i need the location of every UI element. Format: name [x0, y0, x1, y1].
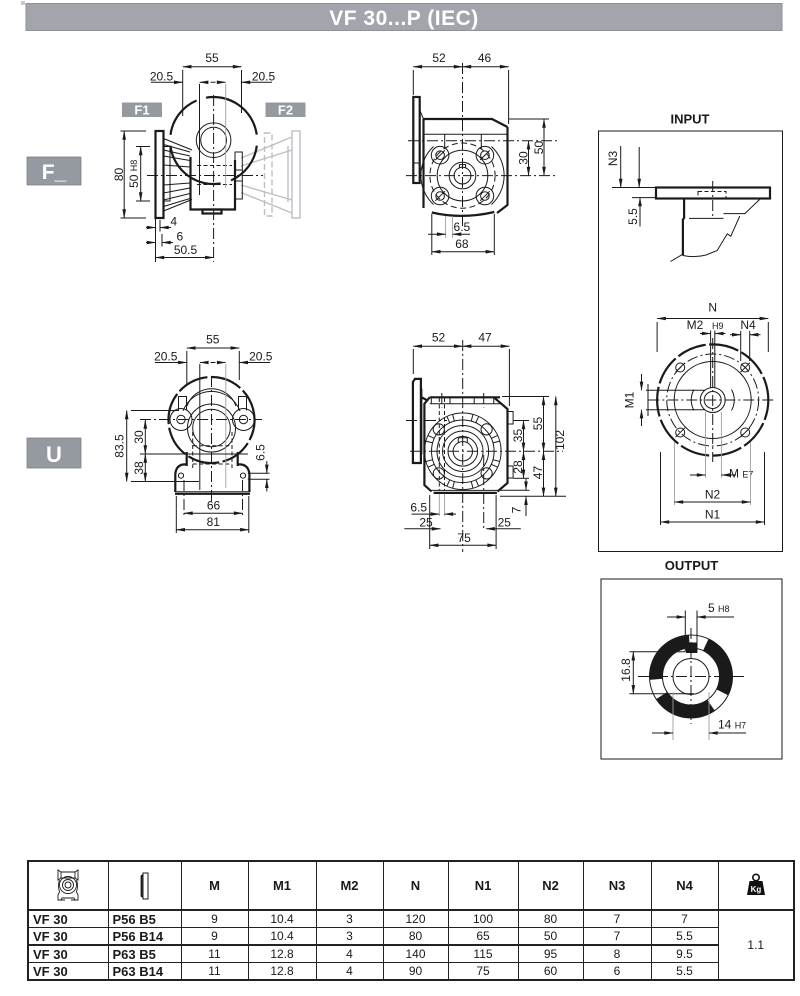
svg-text:102: 102 [553, 430, 567, 450]
svg-text:N1: N1 [705, 508, 721, 522]
svg-text:20.5: 20.5 [249, 349, 273, 363]
svg-text:50.5: 50.5 [174, 243, 198, 257]
svg-text:7: 7 [510, 506, 524, 513]
svg-text:28: 28 [511, 460, 525, 474]
svg-text:30: 30 [132, 430, 146, 444]
svg-text:M1: M1 [623, 391, 637, 408]
svg-text:52: 52 [432, 331, 446, 345]
svg-text:INPUT: INPUT [671, 112, 710, 127]
svg-text:6.5: 6.5 [253, 444, 267, 461]
svg-text:M2: M2 [687, 318, 704, 332]
svg-text:52: 52 [432, 51, 446, 65]
svg-text:M E7: M E7 [729, 467, 753, 481]
svg-text:6.5: 6.5 [410, 501, 427, 515]
svg-text:F1: F1 [134, 103, 149, 118]
svg-text:6: 6 [176, 230, 183, 244]
svg-text:F2: F2 [278, 103, 293, 118]
svg-text:25: 25 [498, 515, 512, 529]
svg-text:55: 55 [531, 417, 545, 431]
svg-text:14 H7: 14 H7 [718, 718, 746, 732]
svg-text:4: 4 [170, 215, 177, 229]
svg-text:80: 80 [112, 168, 126, 182]
svg-text:46: 46 [478, 51, 492, 65]
svg-text:75: 75 [457, 531, 471, 545]
svg-text:H9: H9 [712, 321, 724, 331]
svg-text:50: 50 [532, 141, 546, 155]
svg-text:25: 25 [419, 515, 433, 529]
svg-text:55: 55 [206, 333, 220, 347]
svg-text:VF 30...P (IEC): VF 30...P (IEC) [329, 7, 479, 30]
svg-text:81: 81 [207, 515, 221, 529]
svg-text:N3: N3 [606, 151, 620, 167]
svg-text:16.8: 16.8 [619, 658, 633, 682]
svg-text:47: 47 [531, 466, 545, 480]
svg-text:38: 38 [132, 461, 146, 475]
svg-text:F_: F_ [42, 161, 67, 184]
svg-text:55: 55 [205, 51, 219, 65]
svg-text:6.5: 6.5 [454, 220, 471, 234]
svg-text:20.5: 20.5 [154, 349, 178, 363]
svg-text:68: 68 [455, 237, 469, 251]
svg-text:20.5: 20.5 [252, 69, 276, 83]
svg-text:35: 35 [511, 429, 525, 443]
svg-text:47: 47 [478, 331, 492, 345]
svg-text:66: 66 [207, 499, 221, 513]
svg-text:20.5: 20.5 [150, 69, 174, 83]
svg-text:50 H8: 50 H8 [127, 160, 141, 188]
svg-text:Kg: Kg [750, 885, 761, 894]
svg-text:U: U [46, 442, 62, 467]
svg-text:N4: N4 [740, 318, 756, 332]
svg-text:N: N [708, 301, 717, 315]
svg-text:30: 30 [516, 151, 530, 165]
svg-text:83.5: 83.5 [112, 434, 126, 458]
svg-text:5 H8: 5 H8 [708, 601, 730, 615]
svg-text:5.5: 5.5 [626, 208, 640, 225]
svg-text:OUTPUT: OUTPUT [665, 558, 719, 573]
svg-text:N2: N2 [705, 488, 721, 502]
